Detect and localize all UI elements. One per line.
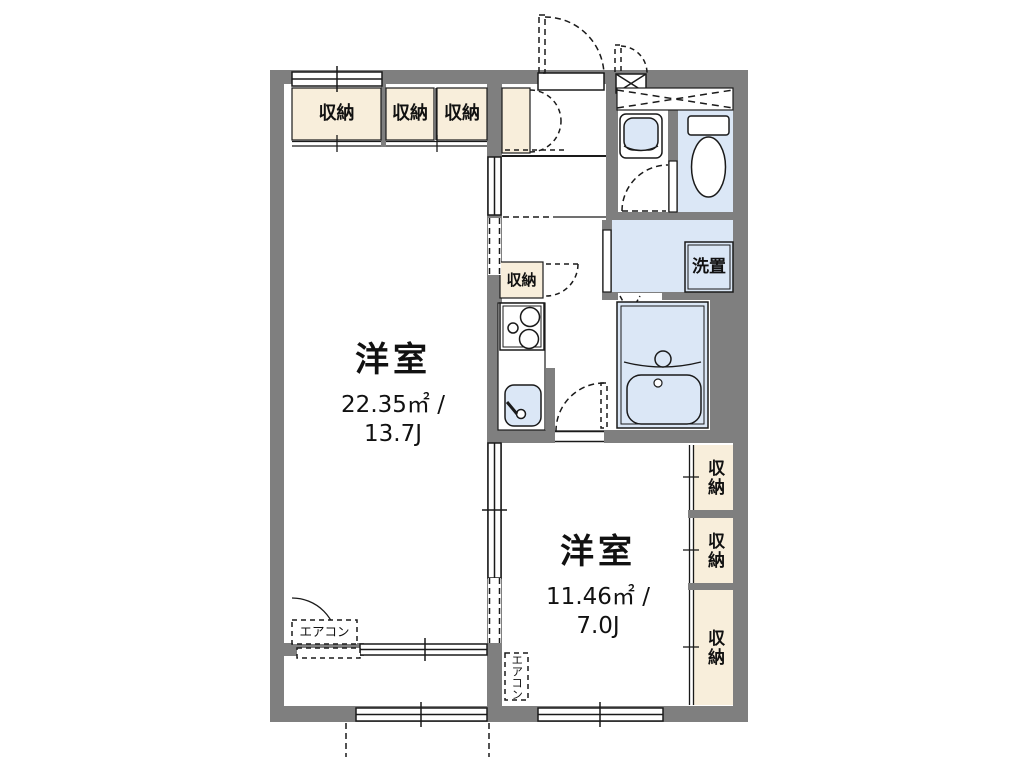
room2-size-jo: 7.0J <box>576 613 619 639</box>
storage-label-top-2: 収納 <box>386 88 434 140</box>
storage-label-right-3: 収納 <box>694 590 733 705</box>
toilet-sliding-door <box>669 161 677 212</box>
entry-door <box>538 73 604 90</box>
room1-size-jo: 13.7J <box>364 421 422 447</box>
stove-icon <box>500 303 544 350</box>
room1-name: 洋室 <box>355 332 431 381</box>
room2-name: 洋室 <box>560 524 636 573</box>
sink-icon <box>505 385 541 426</box>
room2-label-block: 洋室 11.46㎡ / 7.0J <box>503 524 693 639</box>
toilet-icon <box>688 116 729 197</box>
floor-plan: 収納 収納 収納 収納 収納 収納 収納 洗置 エアコン エアコン 洋室 22.… <box>0 0 1017 772</box>
aircon-label-room2: エアコン <box>505 653 528 700</box>
entry-door-swing-icon <box>545 17 604 74</box>
kitchen-unit <box>498 303 545 430</box>
storage-label-top-3: 収納 <box>437 88 487 140</box>
room2-door-swing-icon <box>556 383 604 431</box>
room1-area: 22.35㎡ / <box>341 385 445 419</box>
storage-label-top-1: 収納 <box>292 88 381 140</box>
aircon-label-room1: エアコン <box>292 620 357 644</box>
washbasin-icon <box>620 114 662 158</box>
washroom-door-swing-icon <box>622 165 668 211</box>
storage-label-right-2: 収納 <box>694 518 733 583</box>
kitchen-closet-door-swing-icon <box>546 264 578 296</box>
washer-space-label: 洗置 <box>685 242 733 292</box>
storage-label-kitchen: 収納 <box>500 262 543 298</box>
louver-window-icon <box>617 88 733 110</box>
bathtub-icon <box>617 302 708 428</box>
room2-area: 11.46㎡ / <box>546 577 650 611</box>
storage-label-right-1: 収納 <box>694 445 733 510</box>
meter-box-door-swing-icon <box>621 46 647 73</box>
laundry-sliding-door <box>603 230 611 292</box>
room1-label-block: 洋室 22.35㎡ / 13.7J <box>298 332 488 447</box>
shoe-cabinet-doors-icon <box>530 90 561 152</box>
